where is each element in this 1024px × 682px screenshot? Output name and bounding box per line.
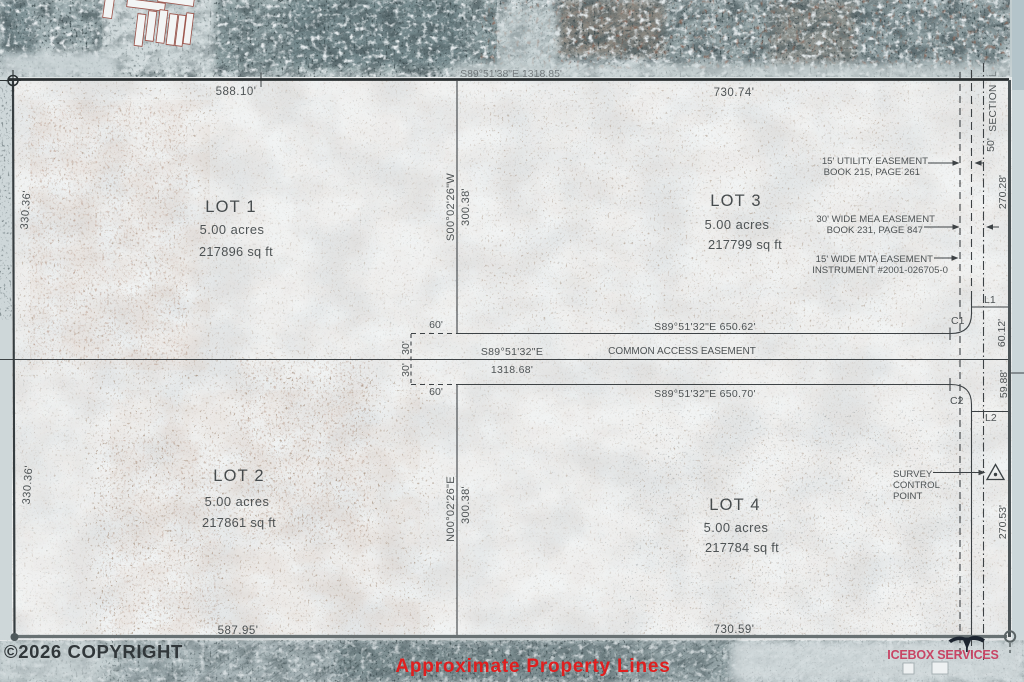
svg-text:60.12': 60.12' xyxy=(996,319,1008,347)
svg-text:59.88': 59.88' xyxy=(998,370,1010,398)
svg-text:300.38': 300.38' xyxy=(460,486,472,524)
svg-text:5.00 acres: 5.00 acres xyxy=(200,222,265,237)
svg-text:S89°51'32"E 650.62': S89°51'32"E 650.62' xyxy=(654,321,756,333)
svg-text:LOT 3: LOT 3 xyxy=(710,192,762,210)
svg-text:ICEBOX SERVICES: ICEBOX SERVICES xyxy=(887,648,998,662)
svg-text:BOOK 231, PAGE 847: BOOK 231, PAGE 847 xyxy=(827,225,923,236)
svg-text:BOOK 215, PAGE 261: BOOK 215, PAGE 261 xyxy=(824,167,920,178)
svg-text:15' UTILITY EASEMENT: 15' UTILITY EASEMENT xyxy=(822,156,928,167)
svg-text:217784 sq ft: 217784 sq ft xyxy=(705,540,779,555)
svg-text:5.00 acres: 5.00 acres xyxy=(705,217,770,232)
svg-text:5.00 acres: 5.00 acres xyxy=(704,520,769,535)
svg-text:SECTION: SECTION xyxy=(988,84,999,131)
svg-text:30': 30' xyxy=(400,363,412,377)
svg-text:50': 50' xyxy=(985,138,997,152)
svg-text:L2: L2 xyxy=(985,412,997,424)
svg-text:SURVEY: SURVEY xyxy=(893,469,933,480)
svg-text:LOT 2: LOT 2 xyxy=(213,467,265,485)
svg-text:S89°51'32"E: S89°51'32"E xyxy=(481,346,543,358)
svg-text:30': 30' xyxy=(400,341,412,355)
svg-text:5.00 acres: 5.00 acres xyxy=(205,494,270,509)
svg-text:730.74': 730.74' xyxy=(714,87,755,99)
svg-text:1318.68': 1318.68' xyxy=(491,364,533,376)
svg-text:Approximate Property Lines: Approximate Property Lines xyxy=(395,656,670,677)
svg-text:COMMON ACCESS EASEMENT: COMMON ACCESS EASEMENT xyxy=(608,346,756,357)
svg-text:217896 sq ft: 217896 sq ft xyxy=(199,244,273,259)
svg-text:S89°51'32"E 650.70': S89°51'32"E 650.70' xyxy=(654,388,756,400)
svg-text:60': 60' xyxy=(429,319,443,331)
svg-text:587.95': 587.95' xyxy=(218,625,259,637)
svg-text:15' WIDE MTA EASEMENT: 15' WIDE MTA EASEMENT xyxy=(816,254,933,265)
svg-text:270.53': 270.53' xyxy=(997,505,1009,539)
svg-text:C1: C1 xyxy=(951,315,965,327)
svg-text:INSTRUMENT #2001-026705-0: INSTRUMENT #2001-026705-0 xyxy=(812,265,948,276)
svg-text:C2: C2 xyxy=(950,395,964,407)
svg-text:30' WIDE MEA EASEMENT: 30' WIDE MEA EASEMENT xyxy=(816,214,935,225)
svg-text:60': 60' xyxy=(429,386,443,398)
svg-text:730.59': 730.59' xyxy=(714,624,755,636)
svg-text:588.10': 588.10' xyxy=(216,86,257,98)
svg-text:©2026 COPYRIGHT: ©2026 COPYRIGHT xyxy=(4,641,183,662)
svg-text:270.28': 270.28' xyxy=(997,175,1009,209)
svg-text:POINT: POINT xyxy=(893,491,922,502)
svg-text:S00°02'26"W: S00°02'26"W xyxy=(445,173,457,241)
svg-text:LOT 1: LOT 1 xyxy=(205,198,257,216)
svg-text:217861 sq ft: 217861 sq ft xyxy=(202,515,276,530)
svg-text:L1: L1 xyxy=(984,294,996,306)
svg-text:S89°51'38"E 1318.85': S89°51'38"E 1318.85' xyxy=(460,68,562,80)
svg-text:L: L xyxy=(988,71,999,77)
svg-text:217799 sq ft: 217799 sq ft xyxy=(708,237,782,252)
svg-text:LOT 4: LOT 4 xyxy=(709,496,761,514)
svg-text:CONTROL: CONTROL xyxy=(893,480,941,491)
svg-text:300.38': 300.38' xyxy=(460,188,472,226)
svg-text:N00°02'26"E: N00°02'26"E xyxy=(445,476,457,542)
